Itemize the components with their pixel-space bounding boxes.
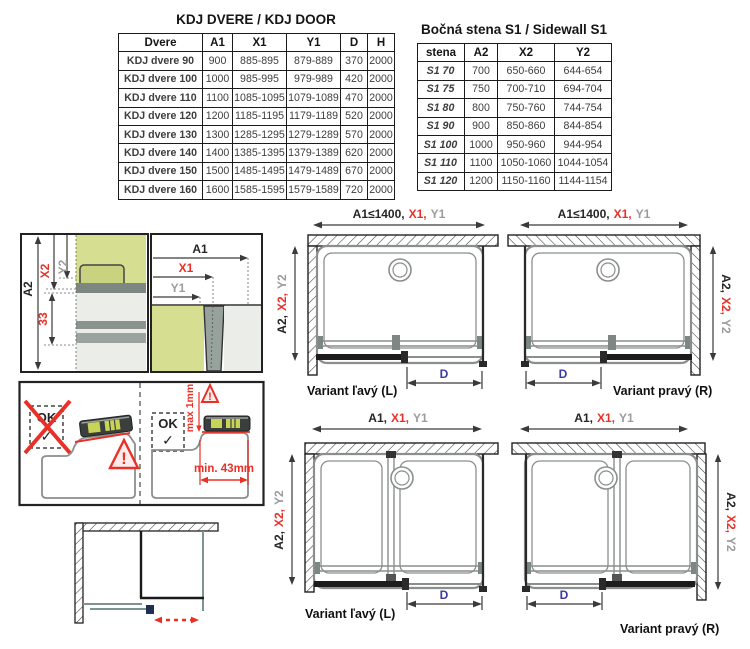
cross-x1-label: X1 (179, 261, 194, 275)
row-name: S1 90 (418, 117, 465, 135)
drain-icon (389, 259, 411, 281)
door-table-header-row: Dvere A1 X1 Y1 D H (119, 34, 395, 52)
roller-bracket (608, 335, 616, 350)
cell-x2: 650-660 (498, 62, 555, 80)
sliding-door-panel (316, 354, 406, 360)
installation-warning-panel: OK ✓ ! ! max 1m (18, 380, 265, 507)
row-name: KDJ dvere 140 (119, 144, 203, 162)
door-header-y1: Y1 (287, 34, 341, 52)
row-name: KDJ dvere 100 (119, 70, 203, 88)
cell-h: 2000 (368, 144, 395, 162)
cell-x1: 1285-1295 (233, 125, 287, 143)
cell-y2: 1144-1154 (555, 172, 612, 190)
door-header-h: H (368, 34, 395, 52)
table-row: KDJ dvere 130 1300 1285-1295 1279-1289 5… (119, 125, 395, 143)
row-name: S1 75 (418, 80, 465, 98)
cross-a1-label: A1 (192, 242, 208, 256)
table-row: KDJ dvere 110 1100 1085-1095 1079-1089 4… (119, 89, 395, 107)
door-header-a1: A1 (203, 34, 233, 52)
cross-y2-label: Y2 (56, 259, 70, 274)
top-dimension-label: A1,X1,Y1 (368, 412, 428, 425)
wall-bracket (612, 451, 622, 458)
cell-a1: 1300 (203, 125, 233, 143)
cell-y1: 979-989 (287, 70, 341, 88)
cell-h: 2000 (368, 162, 395, 180)
cell-x2: 1050-1060 (498, 154, 555, 172)
variant-right-sidewall-diagram: A1,X1,Y1 A2,X2,Y2 (505, 412, 750, 647)
door-opening-dimension: D (407, 588, 482, 610)
side-dimension-label: A2,X2,Y2 (724, 492, 738, 552)
door-table-title: KDJ DVERE / KDJ DOOR (118, 12, 394, 27)
cell-h: 2000 (368, 107, 395, 125)
side-dimension-label: A2,X2,Y2 (719, 274, 733, 334)
cell-y2: 744-754 (555, 99, 612, 117)
exclamation-mark: ! (121, 449, 127, 468)
table-row: S1 120 1200 1150-1160 1144-1154 (418, 172, 612, 190)
cell-x1: 885-895 (233, 52, 287, 70)
cell-a1: 1600 (203, 181, 233, 199)
cell-y2: 844-854 (555, 117, 612, 135)
row-name: S1 120 (418, 172, 465, 190)
door-handle (146, 605, 154, 614)
exclamation-mark: ! (208, 391, 212, 403)
door-handle (600, 351, 607, 363)
cell-d: 520 (341, 107, 368, 125)
cell-x1: 1185-1195 (233, 107, 287, 125)
door-opening-dimension: D (526, 367, 601, 389)
cell-d: 420 (341, 70, 368, 88)
row-name: S1 80 (418, 99, 465, 117)
cell-x2: 1150-1160 (498, 172, 555, 190)
slide-direction-arrow (154, 617, 199, 624)
cell-a1: 1100 (203, 89, 233, 107)
row-name: KDJ dvere 110 (119, 89, 203, 107)
cross-33-label: 33 (36, 312, 50, 326)
cell-d: 670 (341, 162, 368, 180)
cell-x2: 850-860 (498, 117, 555, 135)
min-43mm-label: min. 43mm (194, 463, 254, 475)
cell-h: 2000 (368, 125, 395, 143)
cell-x2: 750-760 (498, 99, 555, 117)
table-row: KDJ dvere 120 1200 1185-1195 1179-1189 5… (119, 107, 395, 125)
cell-y2: 944-954 (555, 135, 612, 153)
door-opening-dimension: D (407, 367, 482, 389)
row-name: KDJ dvere 90 (119, 52, 203, 70)
side-wall (305, 454, 314, 592)
row-name: S1 110 (418, 154, 465, 172)
cell-d: 620 (341, 144, 368, 162)
cell-x1: 1085-1095 (233, 89, 287, 107)
cell-d: 720 (341, 181, 368, 199)
table-row: KDJ dvere 160 1600 1585-1595 1579-1589 7… (119, 181, 395, 199)
checkmark-icon: ✓ (162, 432, 174, 448)
drain-icon (595, 467, 617, 489)
cell-y1: 1579-1589 (287, 181, 341, 199)
row-name: KDJ dvere 150 (119, 162, 203, 180)
wall-profile (204, 306, 224, 371)
table-row: S1 75 750 700-710 694-704 (418, 80, 612, 98)
table-row: KDJ dvere 140 1400 1385-1395 1379-1389 6… (119, 144, 395, 162)
cell-h: 2000 (368, 52, 395, 70)
cell-h: 2000 (368, 70, 395, 88)
cell-x1: 1485-1495 (233, 162, 287, 180)
door-handle (599, 578, 606, 590)
cell-a2: 1000 (465, 135, 498, 153)
sidewall-table-header-row: stena A2 X2 Y2 (418, 44, 612, 62)
door-handle (401, 351, 408, 363)
table-row: KDJ dvere 90 900 885-895 879-889 370 200… (119, 52, 395, 70)
table-row: S1 100 1000 950-960 944-954 (418, 135, 612, 153)
drain-icon (391, 467, 413, 489)
table-row: S1 70 700 650-660 644-654 (418, 62, 612, 80)
cell-a2: 900 (465, 117, 498, 135)
cell-h: 2000 (368, 89, 395, 107)
cell-y2: 694-704 (555, 80, 612, 98)
door-header-dvere: Dvere (119, 34, 203, 52)
row-name: S1 100 (418, 135, 465, 153)
cell-y2: 1044-1054 (555, 154, 612, 172)
variant-label: Variant ľavý (L) (307, 384, 397, 398)
roller-bracket (392, 335, 400, 350)
cell-a1: 1400 (203, 144, 233, 162)
sidewall-table: stena A2 X2 Y2 S1 70 700 650-660 644-654… (417, 43, 612, 191)
cell-h: 2000 (368, 181, 395, 199)
table-row: S1 90 900 850-860 844-854 (418, 117, 612, 135)
cell-a1: 1500 (203, 162, 233, 180)
cell-d: 470 (341, 89, 368, 107)
door-opening-dimension: D (527, 588, 602, 610)
variant-left-sidewall-diagram: A1,X1,Y1 A2,X2,Y2 (268, 412, 500, 640)
cell-a2: 750 (465, 80, 498, 98)
cell-x2: 950-960 (498, 135, 555, 153)
sidewall-table-title: Bočná stena S1 / Sidewall S1 (417, 22, 611, 37)
glass-panel-area (152, 306, 204, 371)
cell-x1: 1585-1595 (233, 181, 287, 199)
cell-a2: 1200 (465, 172, 498, 190)
side-wall (697, 454, 706, 600)
back-wall (77, 523, 218, 531)
side-wall (308, 246, 317, 375)
d-label: D (559, 367, 568, 381)
row-name: KDJ dvere 160 (119, 181, 203, 199)
back-wall (308, 235, 498, 246)
sliding-door-panel (314, 581, 406, 587)
door-table-section: KDJ DVERE / KDJ DOOR Dvere A1 X1 Y1 D H … (118, 12, 394, 200)
cell-a1: 1000 (203, 70, 233, 88)
sliding-door-panel (603, 581, 695, 587)
d-label: D (440, 367, 449, 381)
cross-section-detail-diagram: A2 X2 Y2 33 (18, 231, 265, 377)
cell-d: 570 (341, 125, 368, 143)
sliding-door-panel (602, 354, 692, 360)
back-wall (305, 443, 498, 454)
cell-y1: 1479-1489 (287, 162, 341, 180)
row-name: KDJ dvere 130 (119, 125, 203, 143)
cell-y1: 879-889 (287, 52, 341, 70)
datasheet-page: KDJ DVERE / KDJ DOOR Dvere A1 X1 Y1 D H … (0, 0, 750, 649)
table-row: KDJ dvere 100 1000 985-995 979-989 420 2… (119, 70, 395, 88)
cell-a2: 1100 (465, 154, 498, 172)
spirit-level (204, 416, 250, 431)
door-header-d: D (341, 34, 368, 52)
cross-section-vertical-box: A2 X2 Y2 33 (21, 234, 148, 372)
cross-y1-label: Y1 (171, 281, 186, 295)
variant-label: Variant pravý (R) (613, 384, 712, 398)
sidewall-header-x2: X2 (498, 44, 555, 62)
cell-y1: 1279-1289 (287, 125, 341, 143)
side-dimension-label: A2,X2,Y2 (272, 490, 286, 550)
drain-icon (597, 259, 619, 281)
back-wall (512, 443, 705, 454)
sidewall-table-section: Bočná stena S1 / Sidewall S1 stena A2 X2… (417, 22, 611, 191)
cell-y1: 1179-1189 (287, 107, 341, 125)
cross-x2-label: X2 (38, 263, 52, 278)
table-row: S1 80 800 750-760 744-754 (418, 99, 612, 117)
cell-a1: 1200 (203, 107, 233, 125)
variant-label: Variant ľavý (L) (305, 607, 395, 621)
ok-label: OK (158, 416, 178, 431)
cross-section-horizontal-box: A1 X1 Y1 (151, 234, 262, 372)
side-wall (75, 523, 83, 623)
table-row: S1 110 1100 1050-1060 1044-1054 (418, 154, 612, 172)
cell-x2: 700-710 (498, 80, 555, 98)
side-dimension-label: A2,X2,Y2 (275, 274, 289, 334)
cell-x1: 985-995 (233, 70, 287, 88)
cell-y1: 1079-1089 (287, 89, 341, 107)
door-table: Dvere A1 X1 Y1 D H KDJ dvere 90 900 885-… (118, 33, 395, 200)
door-header-x1: X1 (233, 34, 287, 52)
top-dimension-label: A1≤1400,X1,Y1 (353, 207, 446, 221)
top-dimension-label: A1≤1400,X1,Y1 (558, 207, 651, 221)
cell-a2: 800 (465, 99, 498, 117)
cell-a2: 700 (465, 62, 498, 80)
cell-y1: 1379-1389 (287, 144, 341, 162)
side-wall (691, 246, 700, 375)
sidewall-header-stena: stena (418, 44, 465, 62)
sliding-direction-plan-sketch (58, 512, 238, 649)
max-1mm-label: max 1mm (184, 384, 196, 432)
d-label: D (560, 588, 569, 602)
door-handle (402, 578, 409, 590)
cell-a1: 900 (203, 52, 233, 70)
variant-left-niche-diagram: A1≤1400,X1,Y1 A2,X2,Y2 (268, 205, 500, 403)
cell-y2: 644-654 (555, 62, 612, 80)
table-row: KDJ dvere 150 1500 1485-1495 1479-1489 6… (119, 162, 395, 180)
d-label: D (440, 588, 449, 602)
top-dimension-label: A1,X1,Y1 (574, 412, 634, 425)
sidewall-header-a2: A2 (465, 44, 498, 62)
variant-right-niche-diagram: A1≤1400,X1,Y1 A2,X2,Y2 (505, 205, 745, 403)
row-name: S1 70 (418, 62, 465, 80)
variant-label: Variant pravý (R) (620, 622, 719, 636)
sidewall-header-y2: Y2 (555, 44, 612, 62)
cell-d: 370 (341, 52, 368, 70)
cross-a2-label: A2 (21, 281, 35, 297)
row-name: KDJ dvere 120 (119, 107, 203, 125)
back-wall (508, 235, 700, 246)
cell-x1: 1385-1395 (233, 144, 287, 162)
wall-bracket (386, 451, 396, 458)
